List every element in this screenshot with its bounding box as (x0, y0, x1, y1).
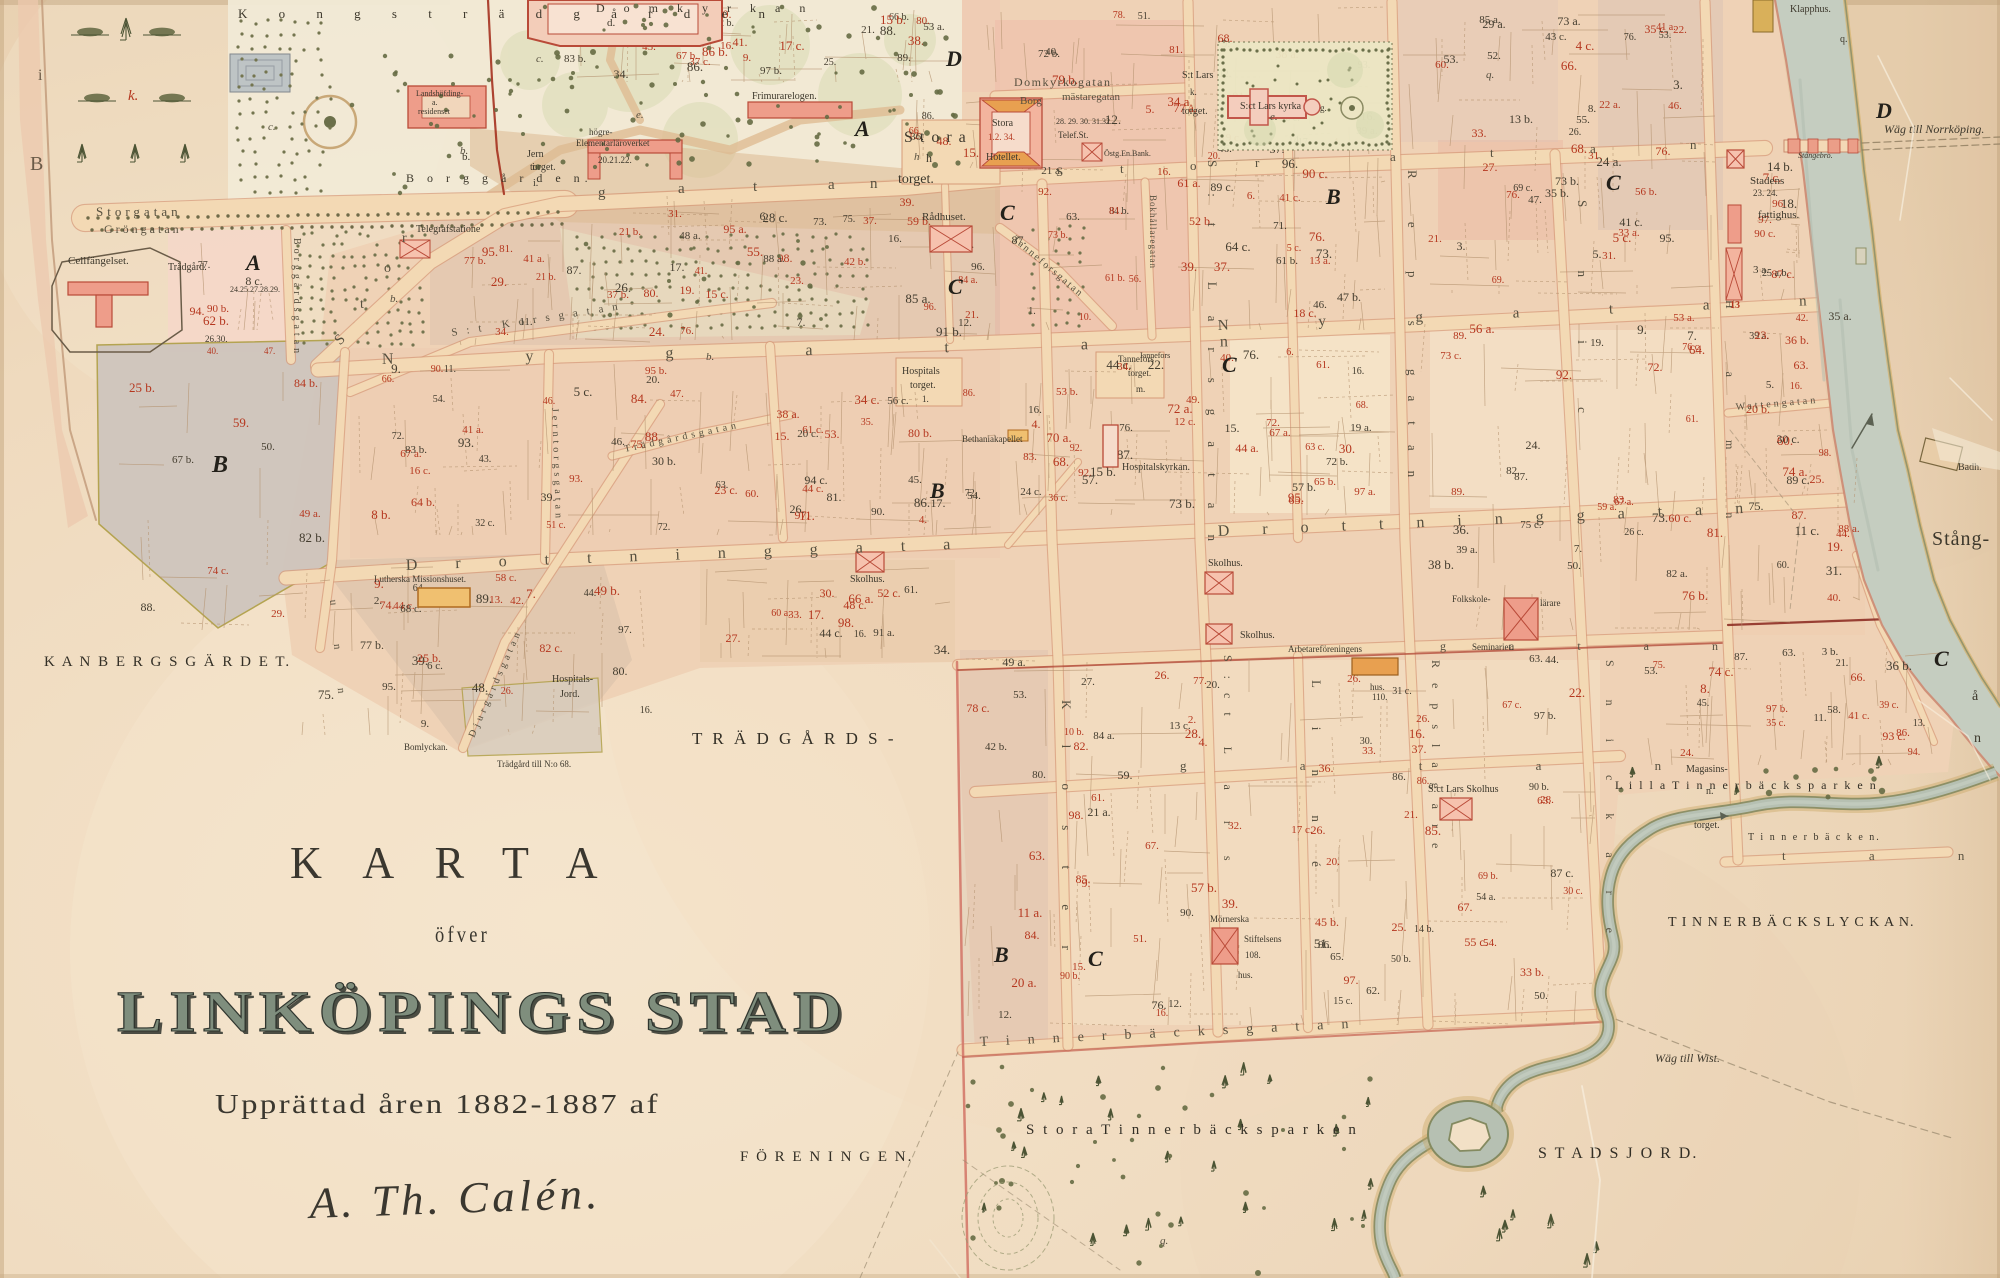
svg-text:T R Ä D G Å R D S -: T R Ä D G Å R D S - (692, 729, 897, 748)
svg-text:59.: 59. (1118, 768, 1133, 782)
svg-text:72 b.: 72 b. (1038, 48, 1060, 60)
svg-text:å: å (1972, 689, 1979, 704)
svg-text:57 b.: 57 b. (1292, 480, 1316, 494)
svg-text:86.: 86. (922, 111, 935, 122)
svg-text:4 c.: 4 c. (1576, 38, 1595, 53)
svg-text:Stora: Stora (904, 129, 973, 146)
svg-text:92.: 92. (1038, 186, 1052, 198)
svg-text:50.: 50. (261, 441, 275, 453)
svg-text:77 b.: 77 b. (464, 255, 486, 267)
svg-text:48 a.: 48 a. (679, 230, 701, 242)
svg-text:26.30.: 26.30. (205, 334, 228, 344)
svg-text:Stång-: Stång- (1932, 528, 1990, 550)
svg-text:6 c.: 6 c. (427, 660, 443, 672)
svg-text:i.: i. (532, 162, 537, 173)
svg-text:30 c.: 30 c. (1563, 886, 1582, 897)
svg-text:90 b.: 90 b. (1529, 782, 1549, 793)
svg-text:3.: 3. (1673, 77, 1683, 92)
svg-text:15.: 15. (963, 145, 979, 160)
svg-text:54.: 54. (967, 490, 981, 502)
svg-text:64 b.: 64 b. (411, 495, 435, 509)
svg-text:75.: 75. (843, 214, 856, 225)
svg-text:39 a.: 39 a. (1456, 544, 1478, 556)
svg-text:15.: 15. (775, 429, 790, 443)
svg-text:90 b.: 90 b. (1060, 971, 1080, 982)
svg-text:32 c.: 32 c. (475, 518, 494, 529)
svg-text:S n i c k a r e: S n i c k a r e (1603, 660, 1617, 948)
svg-text:45.: 45. (1697, 698, 1710, 709)
svg-text:97 b.: 97 b. (1766, 703, 1788, 715)
svg-text:Skolhus.: Skolhus. (1208, 558, 1243, 569)
svg-text:q.: q. (1160, 1235, 1168, 1247)
svg-text:88 a.: 88 a. (763, 253, 785, 265)
svg-text:36 b.: 36 b. (1886, 658, 1912, 673)
svg-text:94 c.: 94 c. (804, 473, 827, 487)
svg-text:q.: q. (1840, 34, 1848, 45)
svg-text:56 c.: 56 c. (887, 395, 909, 407)
svg-text:torget.: torget. (898, 172, 934, 187)
svg-text:54 a.: 54 a. (1476, 892, 1495, 903)
svg-text:Folkskole-: Folkskole- (1452, 594, 1491, 604)
svg-text:25.: 25. (824, 57, 837, 68)
svg-text:92.: 92. (1070, 443, 1083, 454)
svg-text:14 b.: 14 b. (1414, 924, 1434, 935)
svg-text:76 c.: 76 c. (1682, 342, 1701, 353)
svg-text:76.: 76. (680, 325, 694, 337)
svg-text:1.: 1. (922, 394, 929, 404)
svg-text:91 b.: 91 b. (936, 324, 962, 339)
svg-text:21.: 21. (861, 24, 875, 36)
svg-text:19.: 19. (1827, 539, 1843, 554)
svg-text:Frimurarelogen.: Frimurarelogen. (752, 91, 817, 102)
svg-text:17 c.: 17 c. (779, 38, 804, 53)
svg-text:46.: 46. (1313, 299, 1327, 311)
svg-text:4.: 4. (919, 514, 928, 526)
svg-text:97 a.: 97 a. (1354, 486, 1376, 498)
svg-text:14 b.: 14 b. (1767, 159, 1793, 174)
svg-text:53 b.: 53 b. (1056, 386, 1078, 398)
svg-text:a: a (1390, 149, 1396, 164)
svg-text:21.: 21. (1404, 809, 1418, 821)
svg-text:23.: 23. (1755, 328, 1770, 342)
svg-text:12.: 12. (1168, 998, 1182, 1010)
svg-text:72 b.: 72 b. (1326, 456, 1348, 468)
svg-text:16.: 16. (640, 705, 653, 716)
svg-text:Landshöfding-: Landshöfding- (416, 89, 463, 98)
svg-text:49 a.: 49 a. (1002, 655, 1025, 669)
svg-text:5.: 5. (1146, 102, 1155, 116)
svg-text:b.: b. (390, 293, 398, 305)
svg-text:16.: 16. (1409, 726, 1425, 741)
svg-text:95.: 95. (382, 681, 396, 693)
svg-text:60.: 60. (745, 488, 759, 500)
svg-text:83.: 83. (1023, 451, 1037, 463)
svg-text:o: o (384, 261, 391, 276)
svg-text:63.: 63. (1782, 647, 1796, 659)
svg-text:84 b.: 84 b. (294, 376, 318, 390)
svg-text:21 b.: 21 b. (619, 226, 641, 238)
svg-text:A: A (853, 116, 870, 141)
svg-text:73 b.: 73 b. (1555, 174, 1579, 188)
svg-text:öfver: öfver (435, 922, 490, 947)
svg-text:mästaregatan: mästaregatan (1062, 91, 1121, 103)
svg-text:Hospitals-: Hospitals- (552, 674, 593, 685)
svg-text:43.: 43. (479, 454, 492, 465)
svg-text:33.: 33. (1362, 745, 1376, 757)
svg-text:q.: q. (1486, 69, 1494, 81)
svg-text:96.: 96. (1318, 939, 1332, 951)
svg-text:52 c.: 52 c. (877, 586, 900, 600)
svg-text:51.: 51. (1133, 933, 1147, 945)
svg-text:n: n (1690, 137, 1697, 152)
svg-text:34.: 34. (614, 67, 629, 81)
svg-text:52.: 52. (1487, 50, 1501, 62)
svg-text:53.: 53. (825, 427, 840, 441)
svg-text:34 c.: 34 c. (854, 392, 879, 407)
svg-text:47 b.: 47 b. (1337, 290, 1361, 304)
svg-text:Östg.En.Bank.: Östg.En.Bank. (1104, 149, 1151, 158)
svg-text:82 c.: 82 c. (539, 641, 562, 655)
svg-text:97 b.: 97 b. (1534, 710, 1556, 722)
svg-text:33.: 33. (1472, 126, 1487, 140)
svg-text:41.: 41. (733, 35, 748, 49)
svg-text:Wäg till Norrköping.: Wäg till Norrköping. (1884, 122, 1984, 136)
svg-text:23. 24.: 23. 24. (1753, 188, 1778, 198)
svg-text:95 b.: 95 b. (645, 365, 667, 377)
svg-text:67.: 67. (1145, 840, 1159, 852)
svg-text:89.: 89. (476, 591, 492, 606)
svg-text:73 b.: 73 b. (1169, 496, 1195, 511)
svg-text:S:t Lars: S:t Lars (1182, 70, 1213, 81)
svg-text:46.: 46. (543, 396, 556, 407)
svg-text:S n i c: S n i c (1575, 200, 1590, 443)
svg-text:110.: 110. (1372, 692, 1387, 702)
svg-text:35 c.: 35 c. (1766, 718, 1785, 729)
svg-text:41 c.: 41 c. (1848, 710, 1870, 722)
svg-text:B o r g g å r d e n.: B o r g g å r d e n. (406, 171, 593, 185)
svg-text:26.: 26. (790, 502, 805, 516)
svg-text:fattighus.: fattighus. (1758, 209, 1799, 221)
svg-text:81.: 81. (827, 490, 842, 504)
svg-text:S: S (1056, 164, 1063, 179)
svg-text:6.: 6. (760, 209, 769, 223)
svg-text:65.: 65. (1330, 951, 1344, 963)
svg-text:Domkyrkogatan: Domkyrkogatan (1014, 75, 1111, 89)
svg-text:Magasins-: Magasins- (1686, 764, 1728, 775)
svg-text:e.: e. (636, 109, 644, 121)
svg-text:S T A D S J O R D.: S T A D S J O R D. (1538, 1145, 1698, 1162)
svg-text:25 a.b.: 25 a.b. (1762, 268, 1789, 279)
svg-text:Borggårdsgatan: Borggårdsgatan (291, 238, 302, 357)
svg-text:t: t (1490, 145, 1494, 160)
svg-text:16.: 16. (854, 629, 867, 640)
svg-text:17.: 17. (670, 260, 685, 274)
svg-text:22.: 22. (1569, 685, 1585, 700)
svg-text:Lutherska Missionshuset.: Lutherska Missionshuset. (374, 574, 466, 584)
svg-text:65.: 65. (1289, 493, 1304, 507)
svg-text:40.: 40. (1827, 592, 1841, 604)
svg-text:F Ö R E N I N G E N.: F Ö R E N I N G E N. (740, 1148, 913, 1165)
svg-text:47.: 47. (670, 388, 684, 400)
svg-text:47.: 47. (1528, 194, 1542, 206)
svg-text:h: h (926, 151, 932, 165)
svg-text:87.: 87. (567, 263, 582, 277)
svg-text:38 a.: 38 a. (776, 407, 799, 421)
svg-text:72.: 72. (1266, 417, 1280, 429)
svg-text:25 b.: 25 b. (129, 380, 155, 395)
svg-text:92.: 92. (1556, 367, 1572, 382)
svg-text:26.: 26. (1155, 668, 1170, 682)
svg-text:o: o (1190, 158, 1197, 173)
svg-text:45 b.: 45 b. (1315, 915, 1339, 929)
svg-text:41 c.: 41 c. (1279, 192, 1301, 204)
svg-text:50.: 50. (1534, 990, 1548, 1002)
svg-text:Iannefors: Iannefors (1140, 351, 1170, 360)
svg-text:95.: 95. (1660, 231, 1675, 245)
svg-text:80.: 80. (1032, 769, 1046, 781)
svg-text:90 c.: 90 c. (1754, 228, 1776, 240)
svg-text:21.: 21. (1836, 658, 1849, 669)
svg-text:Storgatan: Storgatan (96, 204, 182, 219)
svg-text:44.: 44. (1545, 654, 1559, 666)
svg-text:B: B (1325, 184, 1341, 209)
svg-text:t: t (360, 297, 364, 312)
svg-text:30 b.: 30 b. (652, 454, 676, 468)
svg-text:72.: 72. (658, 522, 671, 533)
svg-text:torget.: torget. (1128, 368, 1151, 378)
svg-text:63.: 63. (1029, 848, 1045, 863)
svg-text:38.: 38. (908, 33, 924, 48)
svg-text:81.: 81. (1109, 205, 1123, 217)
svg-text:83 b.: 83 b. (564, 53, 586, 65)
svg-text:61.: 61. (1316, 359, 1330, 371)
svg-text:16.: 16. (1157, 166, 1171, 178)
svg-text:85 a.: 85 a. (1479, 14, 1501, 26)
svg-text:Cellfängelset.: Cellfängelset. (68, 255, 129, 267)
svg-text:63.: 63. (1066, 211, 1080, 223)
svg-text:47.: 47. (264, 346, 275, 356)
svg-text:63.: 63. (1794, 358, 1809, 372)
svg-text:1.2. 34.: 1.2. 34. (988, 132, 1015, 142)
svg-text:53.: 53. (1013, 689, 1027, 701)
svg-text:61.: 61. (1686, 414, 1699, 425)
svg-text:72.: 72. (1648, 360, 1663, 374)
svg-text:89.: 89. (1453, 330, 1467, 342)
svg-text:g: g (598, 185, 606, 201)
svg-text:61 b.: 61 b. (1276, 255, 1298, 267)
svg-text:55.: 55. (747, 244, 763, 259)
svg-text:a: a (828, 177, 835, 193)
svg-text:5.: 5. (1766, 379, 1775, 391)
svg-text:12.: 12. (998, 1009, 1012, 1021)
svg-text:i.: i. (533, 178, 538, 189)
svg-text:38 b.: 38 b. (1428, 557, 1454, 572)
svg-text:D: D (945, 46, 962, 71)
svg-text:24.: 24. (1526, 438, 1541, 452)
svg-text:65 b.: 65 b. (1314, 476, 1336, 488)
svg-text:35 a.: 35 a. (1828, 309, 1851, 323)
svg-text:A: A (244, 250, 261, 275)
svg-text:35.: 35. (861, 417, 874, 428)
svg-text:44 a.: 44 a. (1235, 441, 1258, 455)
svg-text:Elementarläroverket: Elementarläroverket (576, 138, 650, 148)
svg-text:27.: 27. (1081, 676, 1095, 688)
svg-text:75.: 75. (1653, 660, 1666, 671)
svg-text:Stiftelsens: Stiftelsens (1244, 934, 1282, 944)
svg-text:b.: b. (706, 351, 714, 363)
svg-text:77 b.: 77 b. (360, 638, 384, 652)
svg-text:Arbetareföreningens: Arbetareföreningens (1288, 644, 1362, 654)
svg-text:h: h (914, 151, 920, 163)
svg-text:R e p s gatan: R e p s gatan (1405, 170, 1420, 497)
svg-text:S:t Larsgatan: S:t Larsgatan (1205, 160, 1220, 567)
svg-text:108.: 108. (1245, 950, 1261, 960)
svg-text:87.: 87. (1514, 471, 1528, 483)
svg-text:15 c.: 15 c. (705, 287, 728, 301)
svg-text:13: 13 (1730, 300, 1740, 311)
svg-text:54.: 54. (433, 394, 446, 405)
svg-text:70 a.: 70 a. (1046, 430, 1071, 445)
svg-text:C: C (1222, 352, 1237, 377)
svg-text:58.: 58. (1827, 704, 1841, 716)
svg-text:högre-: högre- (589, 127, 613, 137)
svg-text:87.: 87. (1117, 447, 1133, 462)
svg-text:39.: 39. (900, 195, 915, 209)
svg-text:86.: 86. (1896, 727, 1910, 739)
svg-text:16.: 16. (1028, 404, 1042, 416)
svg-text:94.: 94. (1908, 747, 1921, 758)
svg-text:9.: 9. (421, 718, 430, 730)
svg-text:8 b.: 8 b. (371, 507, 391, 522)
svg-text:13.: 13. (1913, 718, 1926, 729)
svg-text:23.: 23. (790, 275, 804, 287)
svg-text:27.: 27. (726, 631, 741, 645)
svg-text:49.: 49. (1186, 394, 1200, 406)
svg-text:61.: 61. (904, 584, 918, 596)
svg-text:17.: 17. (808, 607, 824, 622)
svg-text:89.: 89. (897, 52, 911, 64)
svg-text:k.: k. (1190, 87, 1197, 97)
svg-text:lärare: lärare (1540, 598, 1560, 608)
svg-text:61 a.: 61 a. (1177, 176, 1200, 190)
svg-text:73.: 73. (1316, 246, 1332, 261)
svg-text:Hospitals: Hospitals (902, 366, 940, 377)
svg-text:74 c.: 74 c. (1708, 664, 1733, 679)
svg-text:78 c.: 78 c. (966, 701, 989, 715)
svg-text:LINKÖPINGS STAD: LINKÖPINGS STAD (117, 979, 849, 1044)
svg-text:7.: 7. (526, 586, 536, 601)
svg-text:59.: 59. (233, 415, 249, 430)
svg-text:42.: 42. (1796, 313, 1809, 324)
svg-text:r: r (402, 231, 407, 246)
svg-text:42.: 42. (510, 595, 524, 607)
svg-text:49 a.: 49 a. (299, 508, 321, 520)
svg-text:Jern: Jern (527, 149, 544, 160)
svg-text:m.: m. (1136, 384, 1145, 394)
svg-text:A. Th. Calén.: A. Th. Calén. (306, 1169, 603, 1228)
svg-text:29.: 29. (271, 608, 285, 620)
svg-text:T I N N E R B Ä C K S L Y C K: T I N N E R B Ä C K S L Y C K A N. (1668, 913, 1914, 930)
svg-text:61.: 61. (1091, 792, 1105, 804)
svg-text:67.: 67. (1458, 900, 1473, 914)
svg-text:a.: a. (432, 98, 438, 107)
svg-text:c.: c. (268, 121, 276, 133)
svg-text:21.: 21. (965, 309, 979, 321)
svg-text:20 c.: 20 c. (797, 428, 819, 440)
svg-text:67 a.: 67 a. (400, 448, 422, 460)
svg-text:24.: 24. (649, 324, 665, 339)
svg-text:93.: 93. (458, 435, 474, 450)
svg-text:C: C (1606, 170, 1621, 195)
svg-text:2.: 2. (1188, 714, 1197, 726)
svg-text:53.: 53. (1444, 52, 1459, 66)
svg-text:B: B (993, 942, 1009, 967)
svg-text:95 a.: 95 a. (723, 222, 746, 236)
svg-text:31 c.: 31 c. (1392, 686, 1411, 697)
svg-text:Hospitalskyrkan.: Hospitalskyrkan. (1122, 462, 1190, 473)
svg-text:73 a.: 73 a. (1557, 14, 1580, 28)
svg-text:15.: 15. (1225, 421, 1240, 435)
svg-text:56.: 56. (1129, 274, 1142, 285)
svg-text:d.: d. (607, 17, 616, 29)
svg-text:89.: 89. (1451, 486, 1465, 498)
svg-text:63.: 63. (1537, 795, 1551, 807)
svg-text:82.: 82. (1074, 739, 1089, 753)
svg-text:30.: 30. (1339, 441, 1355, 456)
svg-text:81.: 81. (1707, 525, 1723, 540)
svg-text:24.25.27.28.29.: 24.25.27.28.29. (230, 285, 280, 294)
svg-text:41 a.: 41 a. (523, 253, 545, 265)
svg-text:26.: 26. (1569, 127, 1582, 138)
svg-text:86.: 86. (687, 59, 703, 74)
svg-text:82 b.: 82 b. (299, 530, 325, 545)
svg-text:H a m n: H a m n (1723, 300, 1737, 548)
svg-text:86.: 86. (914, 495, 930, 510)
svg-text:91 a.: 91 a. (873, 627, 895, 639)
svg-text:Telef.St.: Telef.St. (1058, 130, 1088, 140)
svg-text:5 c.: 5 c. (1287, 243, 1301, 254)
svg-text:63.: 63. (716, 480, 729, 491)
svg-text:a: a (1590, 141, 1596, 156)
svg-text:5 c.: 5 c. (574, 384, 593, 399)
svg-text:3 b.: 3 b. (1822, 646, 1839, 658)
svg-text:80.: 80. (916, 15, 930, 27)
svg-text:torget.: torget. (1182, 106, 1208, 117)
svg-text:B: B (30, 153, 43, 175)
svg-text:66.: 66. (1851, 670, 1866, 684)
svg-text:19 a.: 19 a. (1350, 422, 1372, 434)
svg-text:50 b.: 50 b. (1391, 954, 1411, 965)
svg-text:T i n n e r b ä c k e n.: T i n n e r b ä c k e n. (1748, 832, 1881, 843)
svg-text:33 b.: 33 b. (1520, 965, 1544, 979)
svg-text:L i n n é: L i n n é (1309, 680, 1324, 885)
svg-text:21.: 21. (1428, 233, 1442, 245)
svg-text:D: D (1875, 98, 1892, 123)
svg-text:68.: 68. (1356, 400, 1369, 411)
svg-text:c.: c. (536, 53, 544, 65)
svg-text:87 c.: 87 c. (1550, 866, 1573, 880)
svg-text:11 c.: 11 c. (1795, 523, 1820, 538)
svg-text:76.: 76. (1624, 32, 1637, 43)
svg-text:69.: 69. (1492, 275, 1505, 286)
svg-text:49 b.: 49 b. (594, 583, 620, 598)
svg-text:67 c.: 67 c. (1502, 700, 1521, 711)
svg-text:20.: 20. (1206, 679, 1220, 691)
svg-text:73 c.: 73 c. (1440, 350, 1462, 362)
svg-text:36 b.: 36 b. (1785, 333, 1809, 347)
svg-text:66 a.: 66 a. (848, 591, 873, 606)
svg-text:hus.: hus. (1238, 970, 1253, 980)
